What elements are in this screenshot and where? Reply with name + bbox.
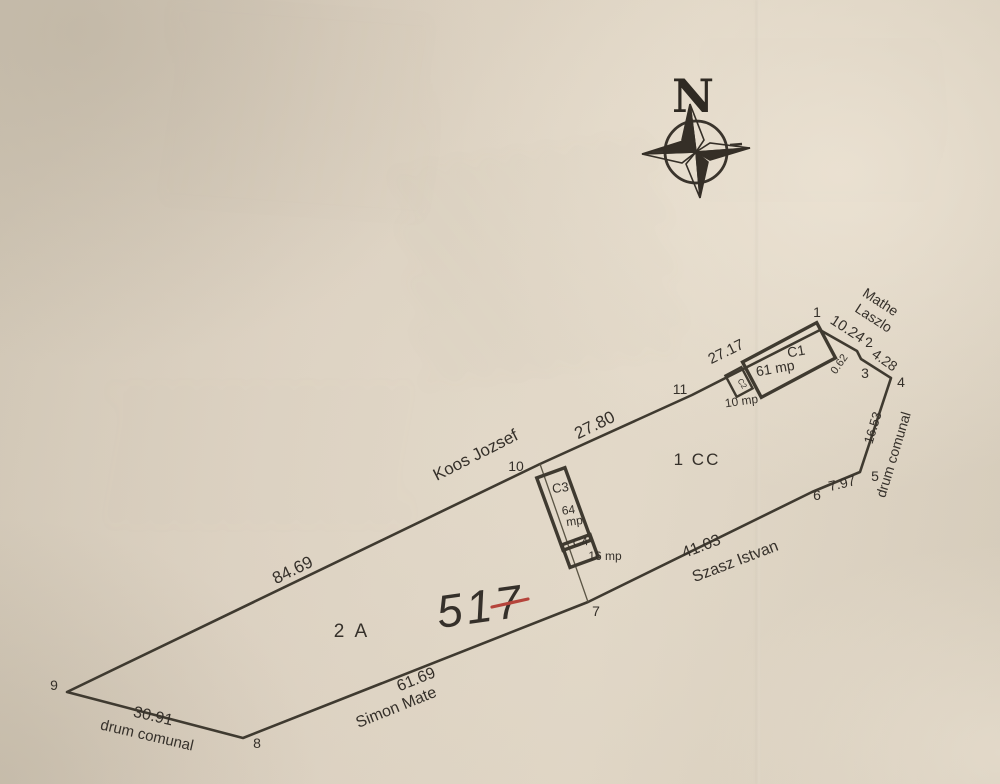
vertex-number: 3 (861, 365, 869, 381)
measurement-label: 27.80 (571, 407, 618, 443)
labels-layer: 1234567891011C161 mpC210 mpC364mpC416 mp… (50, 284, 914, 754)
vertex-number: 8 (253, 735, 261, 751)
measurement-label: 0.62 (828, 352, 850, 376)
neighbor-label: Simon Mate (354, 684, 440, 732)
parcel-number-red: 517 (433, 574, 528, 638)
north-label: N (672, 69, 714, 123)
vertex-number: 1 (813, 304, 821, 320)
vertex-number: 10 (508, 458, 524, 474)
vertex-number: 9 (50, 677, 58, 693)
zone-label: 2 A (334, 621, 370, 642)
measurement-label: 4.28 (869, 346, 901, 375)
north-compass: N (642, 69, 750, 198)
scanned-paper: N 1234567891011C161 mpC210 mpC364mpC416 … (0, 0, 1000, 784)
vertex-number: 11 (673, 381, 688, 397)
parcel-boundary (67, 330, 891, 738)
vertex-number: 7 (592, 603, 600, 619)
vertex-number: 2 (865, 334, 873, 350)
measurement-label: 27.17 (705, 336, 746, 368)
building-area-label: 16 mp (588, 549, 622, 563)
building-area-label: mp (565, 513, 584, 529)
zone-label: 1 CC (674, 450, 721, 469)
neighbor-label: Koos Jozsef (430, 425, 521, 484)
measurement-label: 7.97 (827, 472, 857, 494)
cadastral-map: N 1234567891011C161 mpC210 mpC364mpC416 … (0, 0, 1000, 784)
measurement-label: 16.53 (861, 410, 885, 446)
measurement-label: 41.03 (680, 532, 724, 562)
vertex-number: 6 (813, 487, 821, 503)
building-id-label: C3 (551, 479, 570, 496)
vertex-number: 4 (897, 374, 905, 390)
building-id-label: C4 (572, 534, 589, 550)
building-area-label: 10 mp (724, 392, 759, 411)
parcel-boundary-layer (67, 330, 891, 738)
